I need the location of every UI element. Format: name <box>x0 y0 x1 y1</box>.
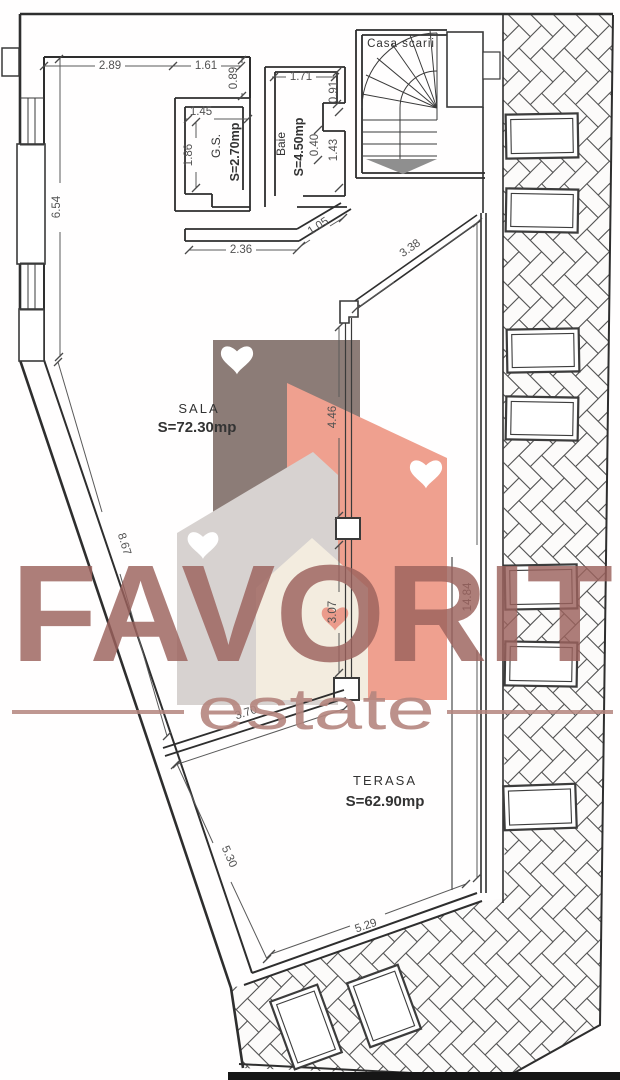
paving-brick <box>123 772 157 806</box>
paving-brick <box>338 206 372 240</box>
paving-brick <box>168 365 202 399</box>
paving-brick <box>44 387 78 421</box>
paving-brick <box>112 116 146 150</box>
scan-edge-bar <box>228 1072 620 1080</box>
paving-brick <box>315 0 349 14</box>
paving-brick <box>428 116 462 150</box>
paving-brick <box>0 568 10 602</box>
paving-brick <box>428 342 462 376</box>
paving-brick <box>146 953 180 987</box>
paving-brick <box>202 795 236 829</box>
paving-brick <box>338 885 372 919</box>
paving-brick <box>214 953 248 987</box>
planter <box>506 113 579 158</box>
paving-brick <box>100 772 134 806</box>
paving-brick <box>406 387 440 421</box>
paving-brick <box>462 320 496 354</box>
paving-brick <box>191 229 225 263</box>
paving-brick <box>214 908 248 942</box>
paving-brick <box>100 320 134 354</box>
pillar <box>340 301 358 323</box>
paving-brick <box>191 772 225 806</box>
room-label-terasa: TERASA <box>353 773 417 788</box>
paving-brick <box>191 1044 225 1078</box>
paving-brick <box>440 817 474 851</box>
paving-brick <box>146 772 180 806</box>
paving-brick <box>610 252 620 286</box>
paving-brick <box>191 908 225 942</box>
paving-brick <box>33 501 67 535</box>
paving-brick <box>180 1021 214 1055</box>
paving-brick <box>462 501 496 535</box>
paving-brick <box>44 931 78 965</box>
paving-brick <box>270 206 304 240</box>
paving-brick <box>247 840 281 874</box>
paving-brick <box>89 387 123 421</box>
paving-brick <box>270 750 304 784</box>
paving-brick <box>112 931 146 965</box>
planter-border <box>506 188 579 232</box>
paving-brick <box>417 93 451 127</box>
paving-brick <box>123 229 157 263</box>
paving-brick <box>270 252 304 286</box>
paving-brick <box>134 433 168 467</box>
paving-brick <box>55 908 89 942</box>
paving-brick <box>462 184 496 218</box>
paving-brick <box>270 885 304 919</box>
paving-brick <box>361 840 395 874</box>
paving-brick <box>270 0 304 14</box>
paving-brick <box>78 365 112 399</box>
paving-brick <box>180 433 214 467</box>
paving-brick <box>293 0 327 14</box>
paving-brick <box>66 704 100 738</box>
paving-brick <box>157 931 191 965</box>
paving-brick <box>123 863 157 897</box>
paving-brick <box>89 297 123 331</box>
paving-brick <box>44 840 78 874</box>
paving-brick <box>134 1021 168 1055</box>
paving-brick <box>78 727 112 761</box>
room-area-gs: S=2.70mp <box>228 122 242 181</box>
paving-brick <box>180 1066 214 1080</box>
paving-brick <box>428 387 462 421</box>
paving-brick <box>440 365 474 399</box>
paving-brick <box>89 840 123 874</box>
paving-brick <box>123 139 157 173</box>
paving-brick <box>610 750 620 784</box>
paving-brick <box>180 478 214 512</box>
paving-brick <box>462 274 496 308</box>
paving-brick <box>33 908 67 942</box>
paving-brick <box>0 840 33 874</box>
paving-brick <box>304 863 338 897</box>
dimension-6-54: 6.54 <box>51 195 63 218</box>
paving-brick <box>33 817 67 851</box>
paving-brick <box>395 274 429 308</box>
paving-brick <box>112 976 146 1010</box>
paving-brick <box>89 433 123 467</box>
paving-brick <box>383 840 417 874</box>
paving-brick <box>236 908 270 942</box>
paving-brick <box>247 206 281 240</box>
paving-brick <box>89 795 123 829</box>
paving-brick <box>123 184 157 218</box>
paving-brick <box>157 71 191 105</box>
paving-brick <box>0 885 33 919</box>
paving-brick <box>451 478 485 512</box>
paving-brick <box>134 116 168 150</box>
paving-brick <box>180 252 214 286</box>
room-area-baie: S=4.50mp <box>292 117 306 176</box>
paving-brick <box>270 795 304 829</box>
paving-brick <box>66 885 100 919</box>
paving-brick <box>259 908 293 942</box>
paving-brick <box>78 410 112 444</box>
paving-brick <box>10 274 44 308</box>
paving-brick <box>462 863 496 897</box>
paving-brick <box>112 252 146 286</box>
paving-brick <box>78 772 112 806</box>
paving-brick <box>327 863 361 897</box>
dimension-0-40: 0.40 <box>309 134 321 156</box>
paving-brick <box>372 229 406 263</box>
paving-brick <box>236 817 270 851</box>
paving-brick <box>315 840 349 874</box>
left-wall-pier <box>19 309 44 361</box>
paving-brick <box>462 410 496 444</box>
paving-brick <box>202 252 236 286</box>
paving-brick <box>66 931 100 965</box>
paving-brick <box>157 297 191 331</box>
paving-brick <box>191 274 225 308</box>
paving-brick <box>395 863 429 897</box>
paving-brick <box>0 433 33 467</box>
paving-brick <box>372 274 406 308</box>
paving-brick <box>33 772 67 806</box>
paving-brick <box>100 410 134 444</box>
paving-brick <box>281 863 315 897</box>
paving-brick <box>338 116 372 150</box>
paving-brick <box>259 274 293 308</box>
paving-brick <box>270 25 304 59</box>
paving-brick <box>372 184 406 218</box>
paving-brick <box>123 274 157 308</box>
paving-brick <box>440 274 474 308</box>
paving-brick <box>462 455 496 489</box>
paving-brick <box>281 3 315 37</box>
paving-brick <box>293 750 327 784</box>
paving-brick <box>66 478 100 512</box>
paving-brick <box>66 795 100 829</box>
paving-brick <box>157 342 191 376</box>
paving-brick <box>451 252 485 286</box>
paving-brick <box>78 908 112 942</box>
paving-brick <box>78 817 112 851</box>
paving-brick <box>372 817 406 851</box>
paving-brick <box>66 342 100 376</box>
paving-brick <box>134 976 168 1010</box>
paving-brick <box>361 0 395 14</box>
paving-brick <box>0 365 21 399</box>
paving-brick <box>361 252 395 286</box>
paving-brick <box>157 885 191 919</box>
paving-brick <box>66 252 100 286</box>
estate-label: estate <box>197 677 435 742</box>
paving-brick <box>66 387 100 421</box>
paving-brick <box>78 501 112 535</box>
paving-brick <box>462 365 496 399</box>
planter <box>506 396 579 440</box>
paving-brick <box>44 704 78 738</box>
paving-brick <box>146 365 180 399</box>
paving-brick <box>123 501 157 535</box>
paving-brick <box>610 704 620 738</box>
paving-brick <box>281 772 315 806</box>
room-label-baie: Baie <box>274 132 288 156</box>
dimension-0-91: 0.91 <box>328 81 340 103</box>
paving-brick <box>406 840 440 874</box>
paving-brick <box>146 998 180 1032</box>
paving-brick <box>89 750 123 784</box>
paving-brick <box>168 1044 202 1078</box>
paving-brick <box>293 885 327 919</box>
paving-brick <box>304 817 338 851</box>
paving-brick <box>372 863 406 897</box>
paving-brick <box>168 274 202 308</box>
paving-brick <box>0 433 10 467</box>
paving-brick <box>0 795 10 829</box>
paving-brick <box>610 840 620 874</box>
paving-brick <box>134 478 168 512</box>
paving-brick <box>610 478 620 512</box>
paving-brick <box>236 274 270 308</box>
paving-brick <box>417 410 451 444</box>
paving-brick <box>451 840 485 874</box>
dimension-4-46: 4.46 <box>327 406 339 428</box>
paving-brick <box>349 817 383 851</box>
paving-brick <box>395 817 429 851</box>
paving-brick <box>372 365 406 399</box>
paving-brick <box>0 750 33 784</box>
paving-brick <box>587 0 620 14</box>
paving-brick <box>0 320 21 354</box>
paving-brick <box>349 93 383 127</box>
paving-brick <box>0 387 10 421</box>
paving-brick <box>259 772 293 806</box>
paving-brick <box>78 184 112 218</box>
paving-brick <box>134 931 168 965</box>
paving-brick <box>610 931 620 965</box>
paving-brick <box>383 297 417 331</box>
planter <box>507 328 580 372</box>
paving-brick <box>10 863 44 897</box>
floor-plan-svg: Casa scariiG.S.S=2.70mpBaieS=4.50mpSALAS… <box>0 0 620 1080</box>
paving-brick <box>372 48 406 82</box>
paving-brick <box>270 297 304 331</box>
paving-brick <box>100 229 134 263</box>
paving-brick <box>451 116 485 150</box>
paving-brick <box>0 455 21 489</box>
paving-brick <box>146 229 180 263</box>
paving-brick <box>395 184 429 218</box>
paving-brick <box>134 840 168 874</box>
paving-brick <box>293 25 327 59</box>
paving-brick <box>0 478 10 512</box>
paving-brick <box>100 184 134 218</box>
paving-brick <box>0 772 21 806</box>
planter-border <box>506 113 579 158</box>
paving-brick <box>0 252 10 286</box>
room-label-casa-scarii: Casa scarii <box>367 38 435 50</box>
paving-brick <box>338 252 372 286</box>
dimension-1-05: 1.05 <box>306 215 331 237</box>
floor-plan-page: Casa scariiG.S.S=2.70mpBaieS=4.50mpSALAS… <box>0 0 620 1080</box>
paving-brick <box>474 0 508 14</box>
paving-brick <box>180 931 214 965</box>
paving-brick <box>451 433 485 467</box>
paving-brick <box>33 727 67 761</box>
paving-brick <box>247 931 281 965</box>
favorit-wordmark: FAVORIT <box>11 537 613 691</box>
paving-brick <box>315 795 349 829</box>
paving-brick <box>293 840 327 874</box>
paving-brick <box>202 25 236 59</box>
paving-brick <box>610 433 620 467</box>
stair-landing <box>447 32 483 107</box>
paving-brick <box>598 998 620 1032</box>
paving-brick <box>349 184 383 218</box>
paving-brick <box>451 342 485 376</box>
stair-direction-arrow-icon <box>366 159 437 174</box>
paving-brick <box>259 863 293 897</box>
paving-brick <box>33 274 67 308</box>
paving-brick <box>180 297 214 331</box>
paving-brick <box>0 478 33 512</box>
watermark-text: FAVORIT estate <box>11 537 613 742</box>
dimension-1-43: 1.43 <box>328 139 340 161</box>
paving-brick <box>236 3 270 37</box>
paving-brick <box>315 25 349 59</box>
paving-brick <box>202 297 236 331</box>
paving-brick <box>180 342 214 376</box>
paving-brick <box>542 0 576 14</box>
paving-brick <box>180 976 214 1010</box>
paving-brick <box>0 342 10 376</box>
paving-brick <box>293 252 327 286</box>
paving-brick <box>112 206 146 240</box>
paving-brick <box>100 274 134 308</box>
paving-brick <box>89 976 123 1010</box>
paving-brick <box>21 840 55 874</box>
paving-brick <box>349 48 383 82</box>
paving-brick <box>361 387 395 421</box>
paving-brick <box>202 1021 236 1055</box>
paving-brick <box>304 772 338 806</box>
paving-brick <box>281 908 315 942</box>
paving-brick <box>428 795 462 829</box>
paving-brick <box>123 365 157 399</box>
paving-brick <box>406 116 440 150</box>
paving-brick <box>134 342 168 376</box>
paving-brick <box>78 953 112 987</box>
paving-brick <box>395 320 429 354</box>
paving-brick <box>146 274 180 308</box>
paving-brick <box>100 455 134 489</box>
paving-brick <box>361 885 395 919</box>
paving-brick <box>33 365 67 399</box>
paving-brick <box>270 931 304 965</box>
paving-brick <box>191 998 225 1032</box>
paving-brick <box>78 139 112 173</box>
paving-brick <box>100 908 134 942</box>
paving-brick <box>406 0 440 14</box>
paving-brick <box>100 727 134 761</box>
paving-brick <box>168 953 202 987</box>
paving-brick <box>0 795 33 829</box>
paving-brick <box>146 501 180 535</box>
paving-brick <box>610 342 620 376</box>
paving-brick <box>293 795 327 829</box>
paving-brick <box>383 0 417 14</box>
paving-brick <box>428 0 462 14</box>
paving-brick <box>10 772 44 806</box>
paving-brick <box>168 320 202 354</box>
dimension-2-36: 2.36 <box>230 244 252 256</box>
paving-brick <box>180 71 214 105</box>
paving-brick <box>168 998 202 1032</box>
paving-brick <box>338 840 372 874</box>
paving-brick <box>214 3 248 37</box>
paving-brick <box>123 93 157 127</box>
paving-brick <box>123 817 157 851</box>
paving-brick <box>259 229 293 263</box>
paving-brick <box>214 274 248 308</box>
paving-brick <box>134 387 168 421</box>
paving-brick <box>123 320 157 354</box>
paving-brick <box>10 501 44 535</box>
paving-brick <box>428 840 462 874</box>
paving-brick <box>610 976 620 1010</box>
paving-brick <box>21 704 55 738</box>
paving-brick <box>338 0 372 14</box>
paving-brick <box>157 976 191 1010</box>
paving-brick <box>134 297 168 331</box>
paving-brick <box>372 320 406 354</box>
paving-brick <box>259 3 293 37</box>
paving-brick <box>406 252 440 286</box>
paving-brick <box>383 387 417 421</box>
dimension-1-71: 1.71 <box>290 71 312 83</box>
right-wall <box>481 107 486 893</box>
paving-brick <box>610 0 620 14</box>
paving-brick <box>315 885 349 919</box>
paving-brick <box>281 274 315 308</box>
left-wall-pier <box>17 144 45 264</box>
stair-exit-door <box>483 52 500 79</box>
paving-brick <box>440 410 474 444</box>
paving-brick <box>89 206 123 240</box>
paving-brick <box>462 772 496 806</box>
paving-brick <box>100 817 134 851</box>
paving-brick <box>89 252 123 286</box>
paving-brick <box>112 342 146 376</box>
paving-brick <box>315 750 349 784</box>
paving-brick <box>361 342 395 376</box>
paving-brick <box>0 863 21 897</box>
paving-brick <box>157 795 191 829</box>
paving-brick <box>157 478 191 512</box>
